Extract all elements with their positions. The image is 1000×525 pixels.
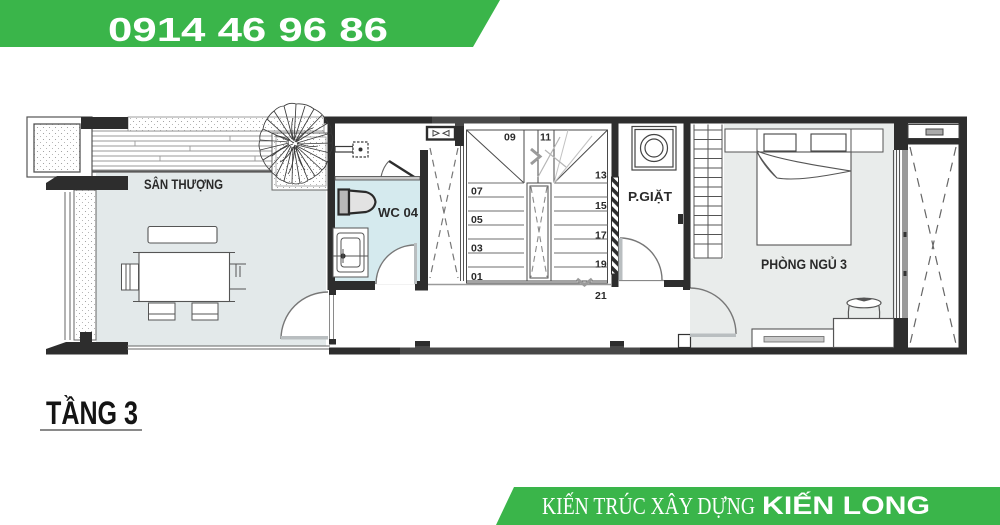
svg-text:15: 15 bbox=[595, 200, 607, 212]
svg-text:01: 01 bbox=[471, 271, 483, 283]
svg-text:PHÒNG NGỦ 3: PHÒNG NGỦ 3 bbox=[761, 255, 847, 272]
svg-text:07: 07 bbox=[471, 186, 483, 198]
svg-text:11: 11 bbox=[540, 132, 551, 144]
svg-text:SÂN THƯỢNG: SÂN THƯỢNG bbox=[144, 175, 223, 192]
svg-text:21: 21 bbox=[595, 290, 607, 302]
svg-text:WC 04: WC 04 bbox=[378, 205, 419, 220]
svg-text:19: 19 bbox=[595, 259, 607, 271]
svg-text:05: 05 bbox=[471, 214, 483, 226]
svg-text:03: 03 bbox=[471, 243, 483, 255]
svg-text:17: 17 bbox=[595, 230, 607, 242]
svg-text:0914 46 96 86: 0914 46 96 86 bbox=[108, 12, 388, 49]
svg-text:13: 13 bbox=[595, 170, 607, 182]
svg-text:09: 09 bbox=[504, 132, 516, 144]
svg-text:KIẾN LONG: KIẾN LONG bbox=[762, 491, 930, 520]
svg-text:TẦNG 3: TẦNG 3 bbox=[46, 395, 138, 431]
svg-text:P.GIẶT: P.GIẶT bbox=[628, 189, 672, 204]
svg-text:KIẾN TRÚC XÂY DỰNG: KIẾN TRÚC XÂY DỰNG bbox=[542, 493, 755, 520]
